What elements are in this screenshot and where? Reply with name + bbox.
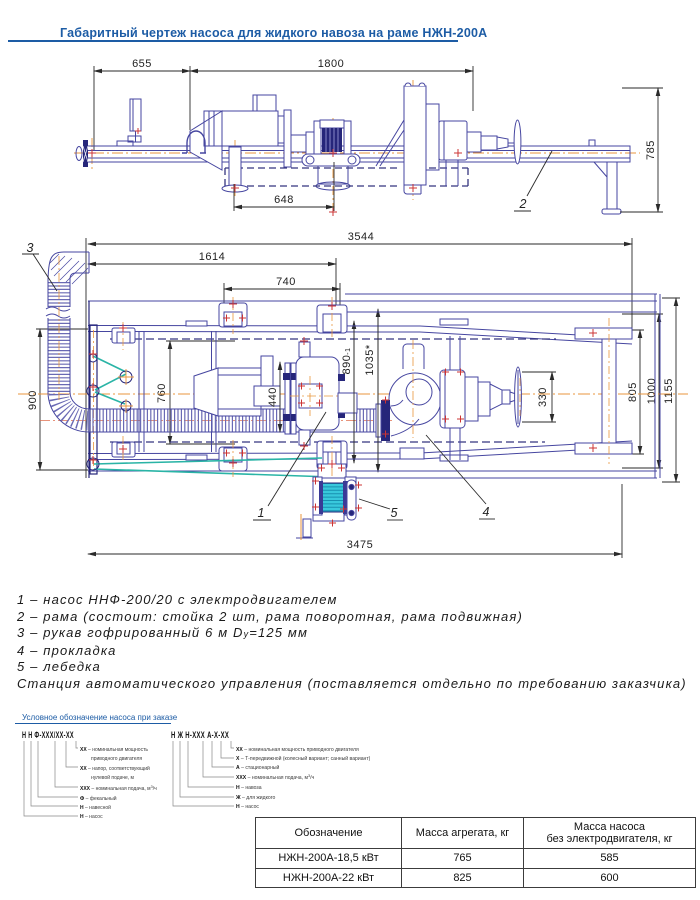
- svg-text:3475: 3475: [347, 539, 373, 551]
- svg-text:648: 648: [274, 194, 294, 206]
- svg-text:1155: 1155: [663, 378, 675, 404]
- svg-text:ХХ – номинальная мощность: ХХ – номинальная мощность: [80, 747, 148, 753]
- svg-text:ХХ – напор, соответствующий: ХХ – напор, соответствующий: [80, 765, 150, 772]
- svg-text:1: 1: [258, 506, 265, 520]
- svg-text:Н – насос: Н – насос: [80, 814, 103, 820]
- svg-text:ХХ – номинальная мощность прив: ХХ – номинальная мощность приводного дви…: [236, 747, 359, 753]
- svg-text:740: 740: [276, 276, 296, 288]
- svg-text:1035*: 1035*: [364, 344, 376, 375]
- svg-text:3: 3: [27, 241, 34, 255]
- svg-text:Н – навесной: Н – навесной: [80, 804, 111, 811]
- svg-text:1000: 1000: [646, 378, 658, 404]
- svg-text:1800: 1800: [318, 58, 344, 70]
- svg-text:А – стационарный: А – стационарный: [236, 764, 280, 771]
- svg-text:760: 760: [156, 383, 168, 403]
- svg-text:ХХХ – номинальная подача, м3/ч: ХХХ – номинальная подача, м3/ч: [80, 785, 157, 792]
- svg-text:330: 330: [537, 387, 549, 407]
- svg-text:Н – насос: Н – насос: [236, 804, 259, 810]
- svg-text:785: 785: [645, 140, 657, 160]
- svg-text:890-1: 890-1: [341, 347, 353, 374]
- svg-text:Х – Т-передвижной (колесный ва: Х – Т-передвижной (колесный вариант; сан…: [236, 755, 371, 762]
- svg-text:4: 4: [483, 505, 490, 519]
- svg-text:2: 2: [519, 197, 527, 211]
- svg-text:Н – навоза: Н – навоза: [236, 785, 262, 791]
- svg-text:ХХХ – номинальная подача, м3/ч: ХХХ – номинальная подача, м3/ч: [236, 774, 314, 781]
- svg-text:Ф – фекальный: Ф – фекальный: [80, 795, 117, 802]
- svg-text:нулевой подаче, м: нулевой подаче, м: [91, 774, 135, 781]
- svg-text:3544: 3544: [348, 231, 374, 243]
- svg-text:440: 440: [267, 387, 279, 407]
- svg-text:805: 805: [627, 382, 639, 402]
- svg-text:Ж – для жидкого: Ж – для жидкого: [235, 795, 275, 801]
- svg-text:5: 5: [391, 506, 398, 520]
- svg-text:655: 655: [132, 58, 152, 70]
- svg-text:900: 900: [27, 390, 39, 410]
- svg-text:1614: 1614: [199, 251, 225, 263]
- svg-text:приводного двигателя: приводного двигателя: [91, 756, 142, 762]
